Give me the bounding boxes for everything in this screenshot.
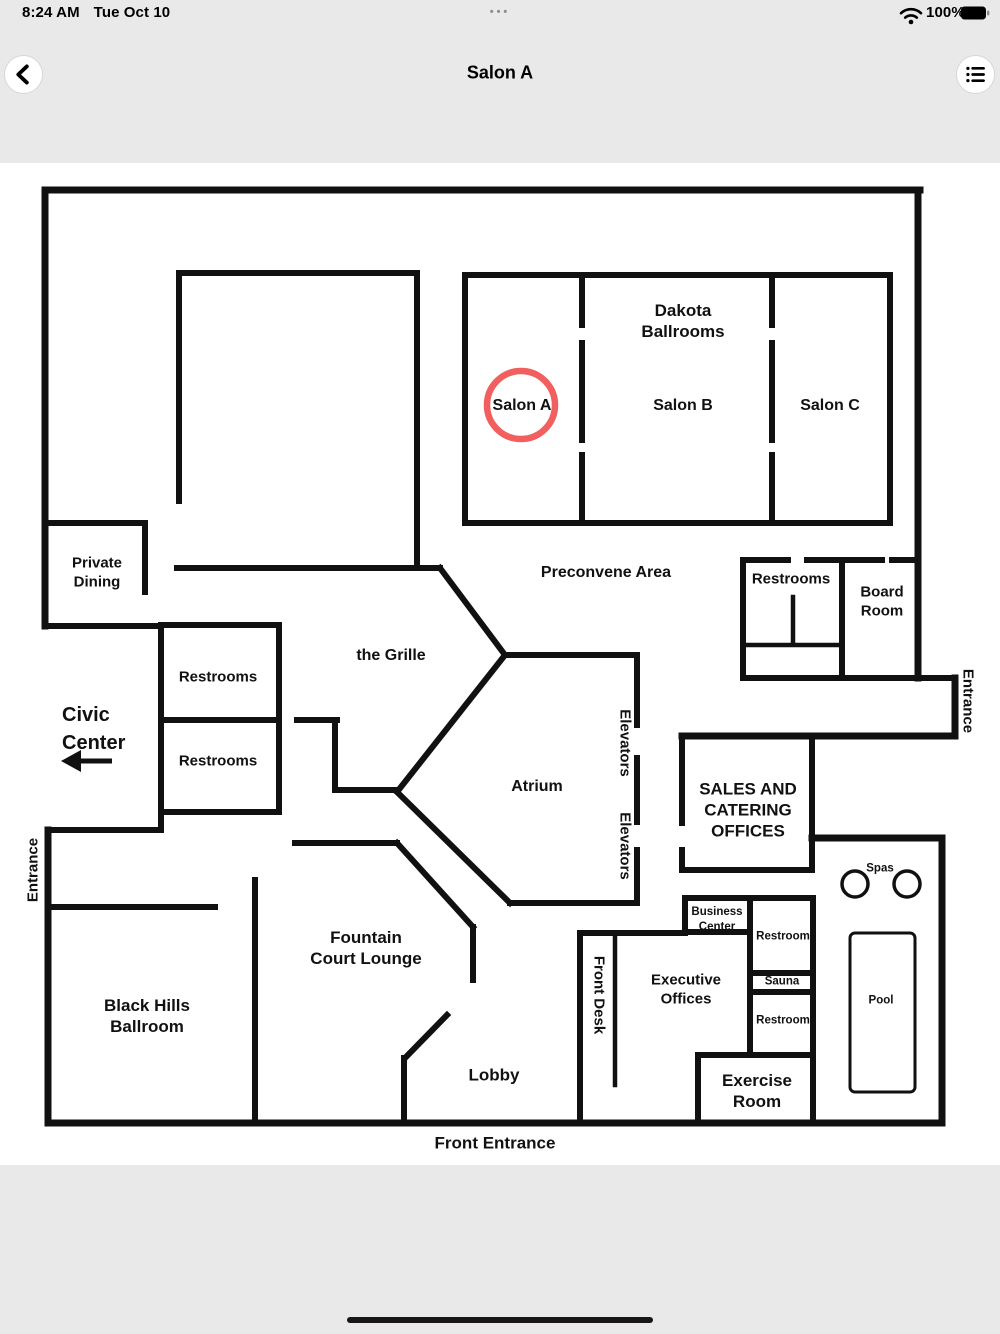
spa-tub — [894, 871, 920, 897]
room-label-entrance-left: Entrance — [25, 838, 44, 902]
room-label-business-center: Business Center — [691, 905, 742, 935]
room-label-fountain: Fountain Court Lounge — [310, 927, 421, 969]
room-label-restrooms-w1: Restrooms — [179, 669, 257, 688]
room-label-salon-b: Salon B — [653, 396, 713, 416]
battery-full-icon — [960, 5, 990, 21]
room-label-elevators-2: Elevators — [615, 812, 634, 880]
room-label-executive: Executive Offices — [651, 971, 721, 1008]
room-label-front-entrance: Front Entrance — [435, 1132, 556, 1153]
room-label-board-room: Board Room — [860, 583, 903, 620]
room-label-front-desk: Front Desk — [589, 956, 608, 1034]
status-date: Tue Oct 10 — [94, 4, 171, 21]
ellipsis-icon: ••• — [490, 6, 511, 18]
room-label-dakota: Dakota Ballrooms — [641, 300, 724, 342]
room-label-grille: the Grille — [356, 646, 425, 666]
chevron-left-icon — [5, 55, 42, 94]
nav-bar: Salon A — [0, 27, 1000, 67]
room-label-sales: SALES AND CATERING OFFICES — [699, 778, 797, 841]
room-label-pool: Pool — [869, 994, 894, 1009]
room-label-restrooms-ne: Restrooms — [752, 571, 830, 590]
wifi-icon — [898, 4, 924, 26]
room-label-civic-center: Civic Center — [62, 701, 125, 757]
status-time: 8:24 AM — [22, 4, 80, 21]
room-label-restroom-2: Restroom — [756, 1014, 810, 1029]
battery-percent: 100% — [926, 4, 965, 21]
home-indicator[interactable] — [347, 1317, 653, 1323]
list-menu-icon — [957, 55, 994, 94]
room-label-lobby: Lobby — [469, 1064, 520, 1085]
app-screen: { "status_bar": { "time": "8:24 AM", "da… — [0, 0, 1000, 1334]
pool-outline — [850, 933, 915, 1092]
room-label-atrium: Atrium — [511, 777, 563, 797]
room-label-restroom-1: Restroom — [756, 930, 810, 945]
page-title: Salon A — [467, 63, 533, 84]
status-bar: 8:24 AM Tue Oct 10 ••• 100% — [0, 0, 1000, 30]
room-label-private-dining: Private Dining — [72, 554, 122, 591]
room-label-elevators-1: Elevators — [615, 709, 634, 777]
room-label-preconvene: Preconvene Area — [541, 563, 671, 583]
room-label-restrooms-w2: Restrooms — [179, 753, 257, 772]
room-label-salon-a: Salon A — [493, 396, 552, 416]
room-label-sauna: Sauna — [765, 975, 800, 990]
room-list-button[interactable] — [956, 55, 995, 94]
back-button[interactable] — [4, 55, 43, 94]
room-label-entrance-right: Entrance — [958, 669, 977, 733]
room-label-salon-c: Salon C — [800, 396, 860, 416]
spa-tub — [842, 871, 868, 897]
room-label-black-hills: Black Hills Ballroom — [104, 995, 190, 1037]
room-label-spas: Spas — [866, 862, 894, 877]
room-label-exercise: Exercise Room — [722, 1070, 792, 1112]
